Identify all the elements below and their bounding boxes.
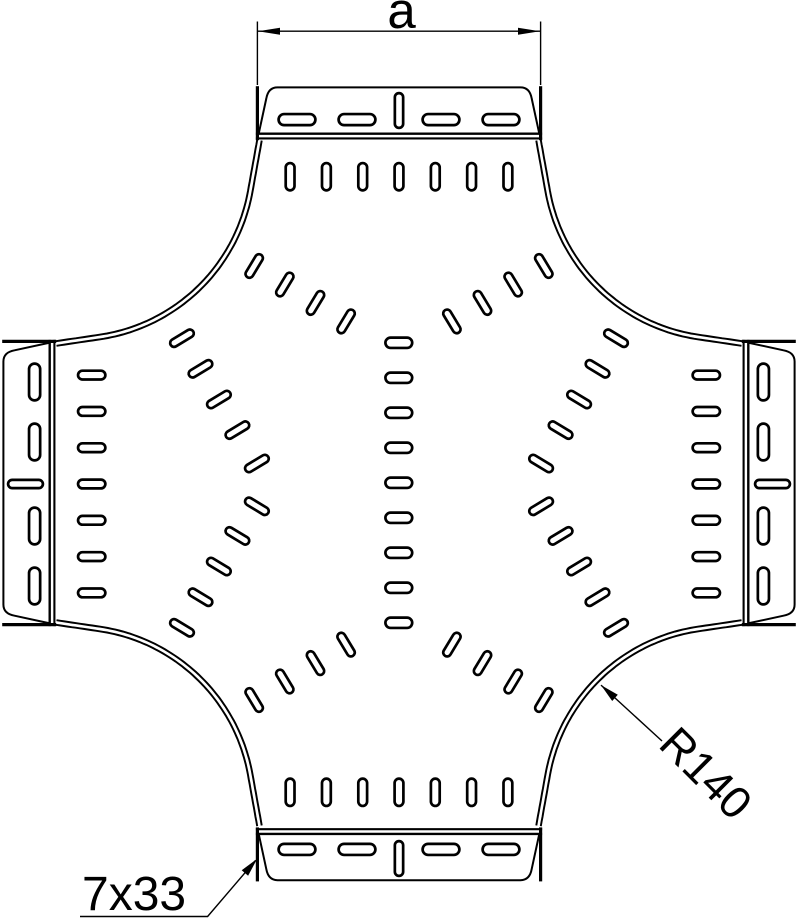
- svg-text:7x33: 7x33: [82, 868, 186, 918]
- svg-text:a: a: [387, 0, 416, 39]
